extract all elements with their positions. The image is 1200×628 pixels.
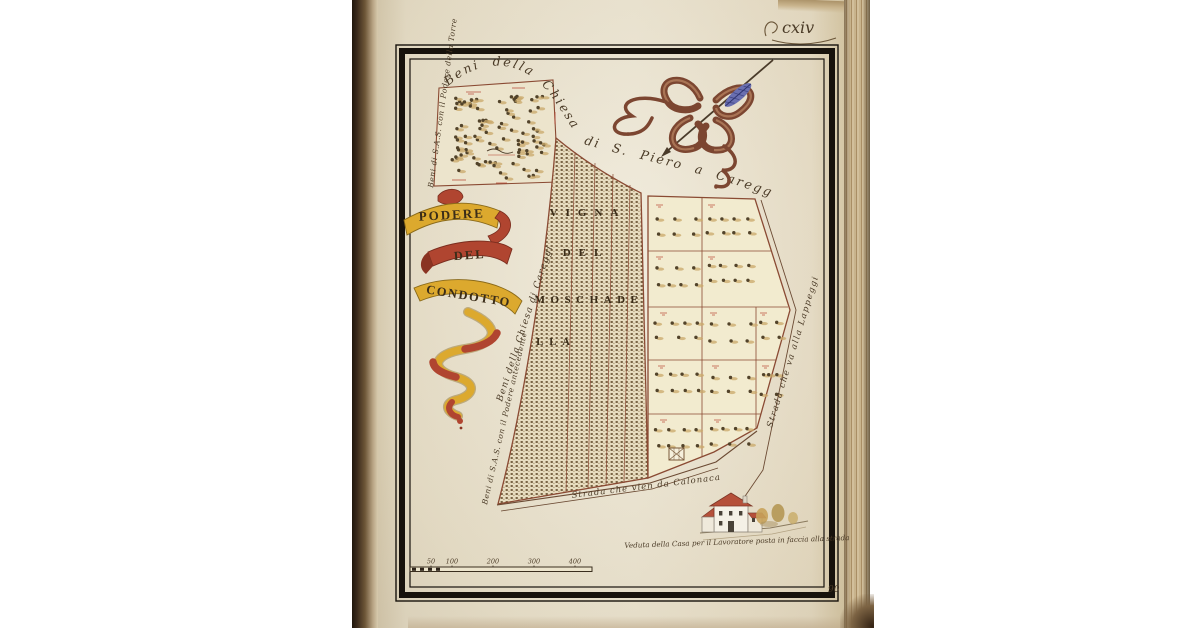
page-tone [378,0,844,628]
page-edge-stack [844,0,870,628]
book-page [378,0,844,628]
page-top-edge [778,0,852,14]
book [352,0,870,628]
book-spine [352,0,378,628]
page-bottom-edge [408,616,870,628]
scanned-book-photo: cxiv Beni della Chiesa [0,0,1200,628]
page-corner-shadow [840,594,874,628]
